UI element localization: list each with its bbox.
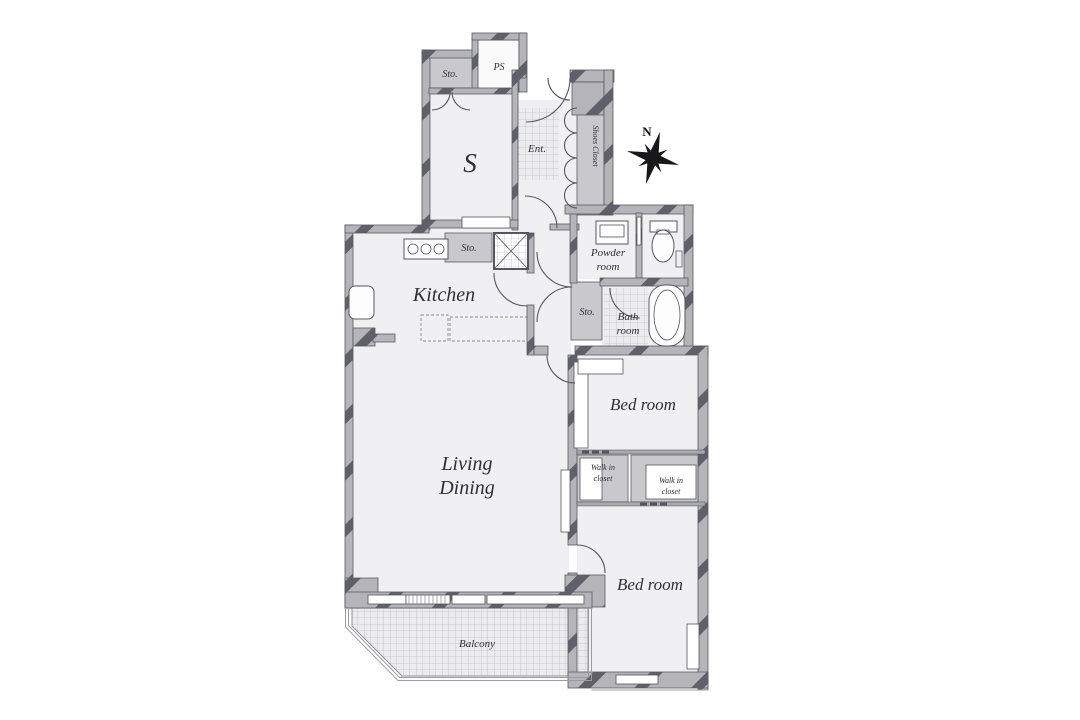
shoes-closet-label: Shoes Closet	[591, 125, 600, 167]
bedroom-lower-label: Bed room	[617, 575, 683, 594]
balcony-label: Balcony	[459, 638, 495, 650]
storage-hall-label: Sto.	[579, 307, 594, 318]
living-sliding-panel	[561, 470, 570, 532]
north-label: N	[642, 124, 652, 139]
compass-icon: N	[620, 124, 686, 191]
kitchen-living-floor	[352, 228, 569, 593]
bedroom-upper-counter	[578, 359, 623, 374]
powder-room-label-2: room	[597, 261, 620, 273]
living-dining-label-2: Dining	[438, 477, 495, 499]
floorplan-svg: N Sto. PS S Ent. Shoes Closet Kitchen St…	[0, 0, 1080, 720]
bath-room-label-2: room	[617, 325, 640, 337]
wic-left-label-2: closet	[594, 474, 613, 483]
pipe-space-label: PS	[492, 62, 504, 73]
living-dining-label-1: Living	[440, 453, 492, 475]
kitchen-sink-icon	[349, 286, 374, 319]
entry-door-child	[548, 78, 570, 100]
living-window-2	[452, 595, 485, 604]
living-window-3	[487, 595, 584, 604]
storage-top-label: Sto.	[442, 69, 457, 80]
bathtub-icon	[649, 285, 685, 346]
wic-left-label-1: Walk in	[591, 463, 615, 472]
stove-icon	[404, 239, 448, 259]
kitchen-label: Kitchen	[412, 284, 475, 306]
bedroom-upper-label: Bed room	[610, 395, 676, 414]
bedroom-lower-window	[616, 675, 658, 684]
duct-icon	[494, 233, 528, 269]
bedroom-upper-closet-strip	[574, 362, 588, 448]
service-room-closet	[462, 217, 510, 228]
washbasin-icon	[596, 221, 628, 244]
floorplan-page: N Sto. PS S Ent. Shoes Closet Kitchen St…	[0, 0, 1080, 720]
wic-right-label-2: closet	[662, 487, 681, 496]
living-window-1	[368, 595, 406, 604]
powder-room-label-1: Powder	[590, 247, 626, 259]
living-window-louver	[406, 595, 450, 604]
storage-kitchen-label: Sto.	[461, 243, 476, 254]
entrance-label: Ent.	[527, 143, 546, 155]
bath-room-label-1: Bath	[618, 311, 639, 323]
service-room-label: S	[463, 148, 477, 178]
bedroom-lower-fixture	[687, 624, 699, 669]
toilet-sliding-door	[637, 217, 641, 245]
wic-right-label-1: Walk in	[659, 476, 683, 485]
